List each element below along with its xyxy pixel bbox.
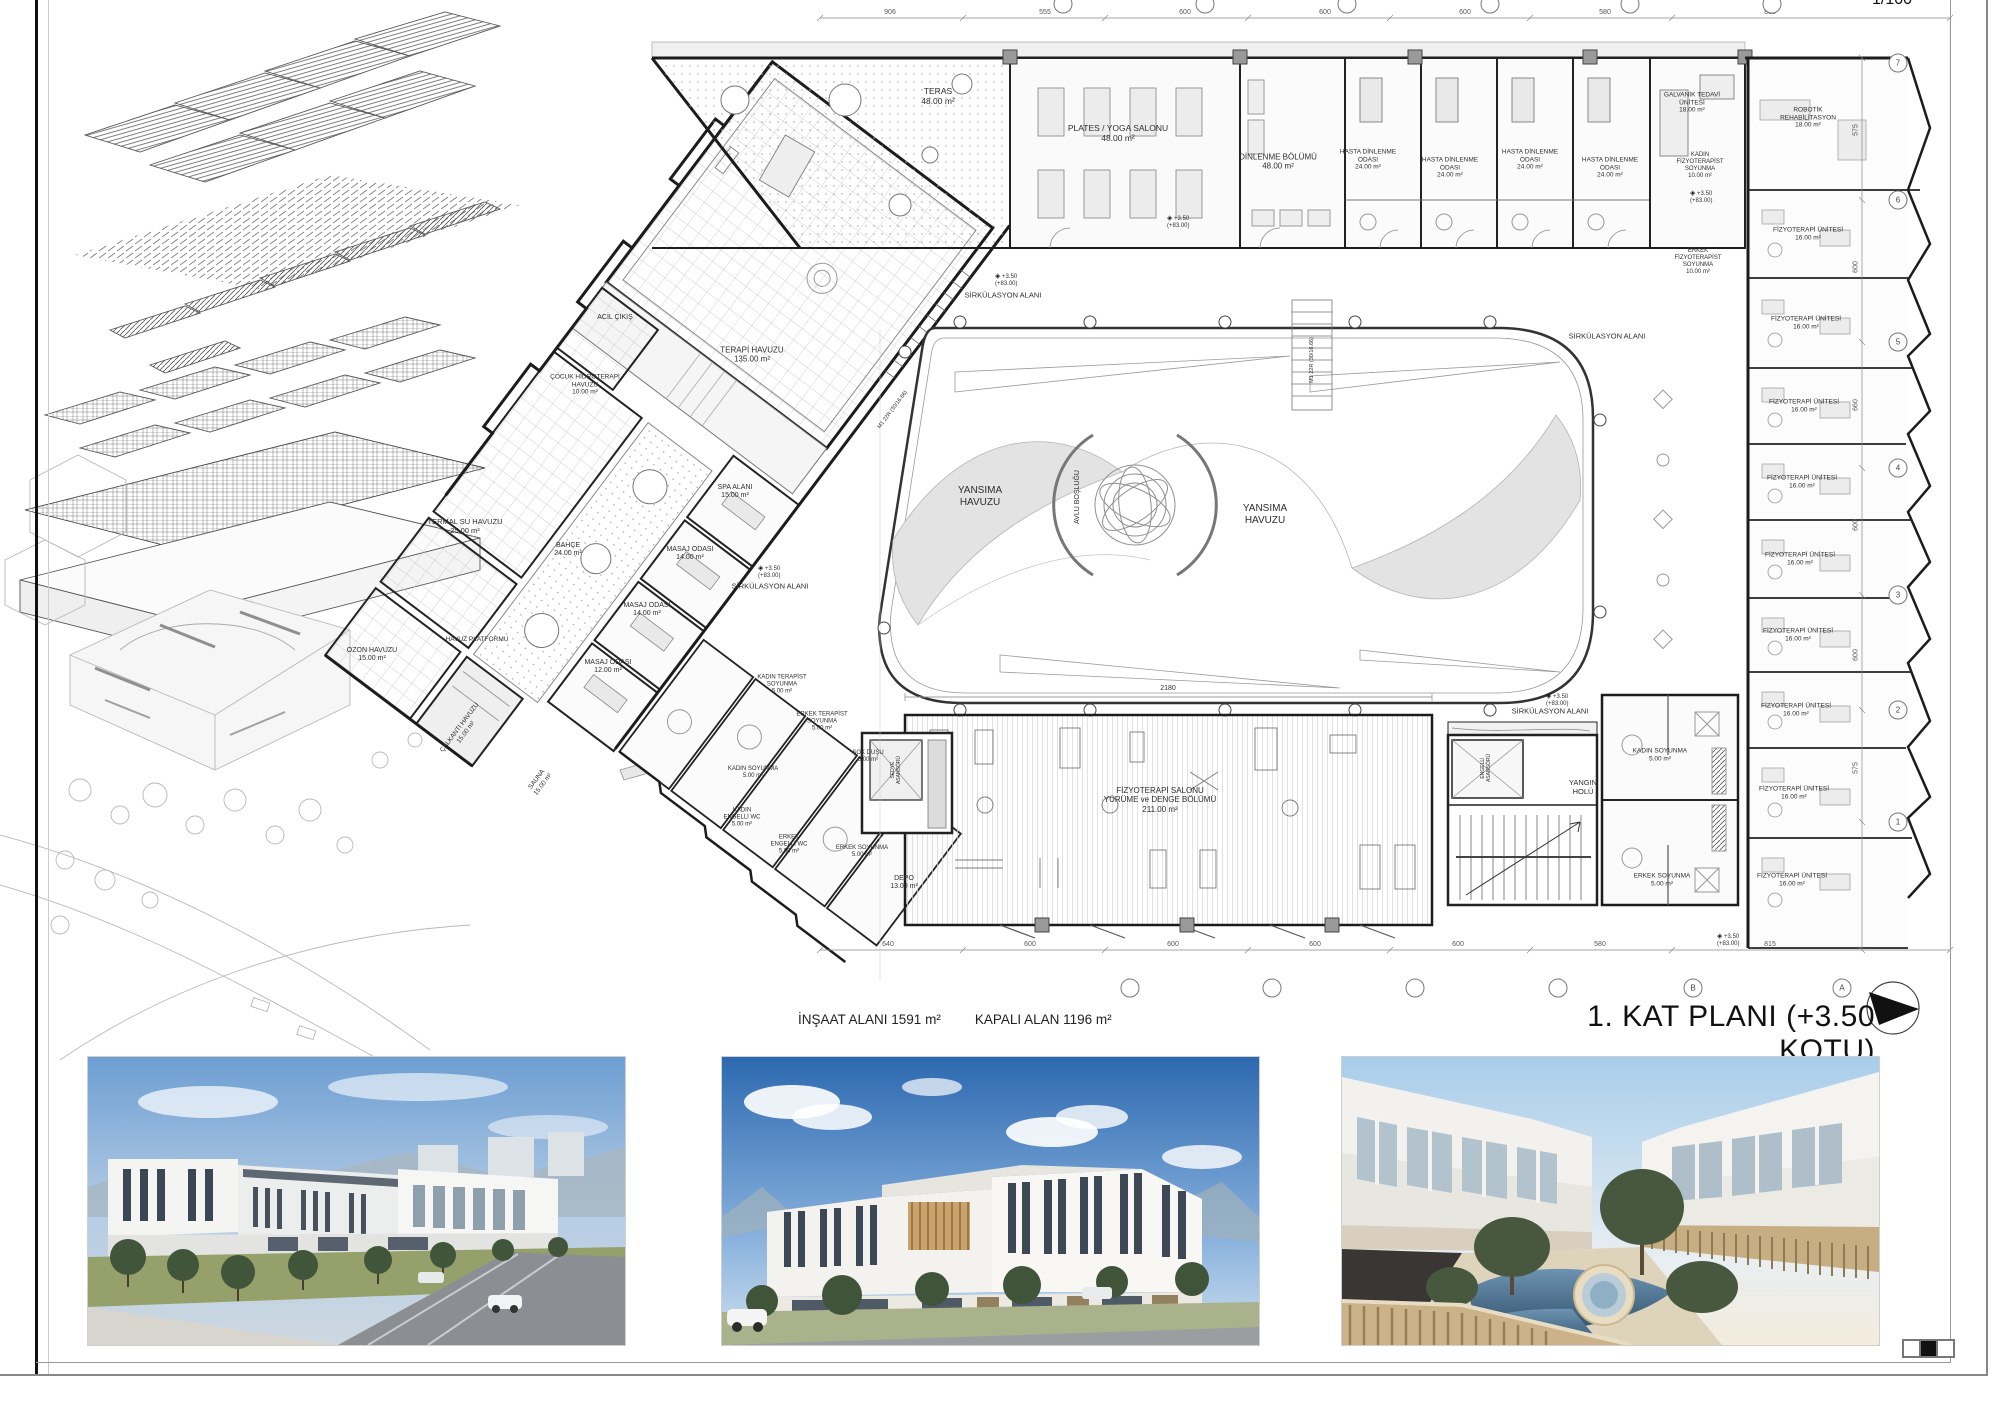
physio-hall [905,693,1432,938]
frame-right-outer [1986,0,1988,1375]
area-note-kapali: KAPALI ALAN 1196 m² [975,1012,1112,1027]
frame-right-inner [1950,0,1951,1362]
area-note-insaat: İNŞAAT ALANI 1591 m² [798,1012,941,1027]
stretcher-elevator [862,733,952,833]
sawtooth-facade [1908,58,1930,898]
patient-rest-rooms [1345,58,1650,248]
car-2 [1082,1287,1112,1299]
street-view-render [88,1057,625,1345]
solar-panel-layer [85,12,500,182]
yoga-room [1010,58,1240,248]
presentation-sheet: TERAS 48.00 m²PLATES / YOGA SALONU 48.00… [0,0,2000,1411]
area-note: İNŞAAT ALANI 1591 m²KAPALI ALAN 1196 m² [798,1012,1146,1027]
grating-strip-layer [45,317,475,457]
frame-bottom-inner [36,1362,1951,1363]
fire-stair-core [1448,722,1597,905]
fountain [1574,1265,1634,1325]
sheet-left-rule [35,0,38,1375]
car-2 [418,1272,444,1283]
courtyard [878,300,1672,716]
sheet-left-rule-thin [48,0,49,1375]
planter-diamonds [1654,390,1672,648]
top-corner-scale: 1/100 [1872,0,1912,9]
right-changing-block [1602,695,1738,905]
scalebar-square-right [1936,1339,1955,1358]
courtyard-pool-render [1342,1057,1879,1345]
top-room-band [652,42,1752,248]
site-trees [51,733,422,934]
right-unit-column [1745,58,1930,948]
corner-view-render [722,1057,1259,1345]
frame-bottom-outer [0,1374,1988,1376]
